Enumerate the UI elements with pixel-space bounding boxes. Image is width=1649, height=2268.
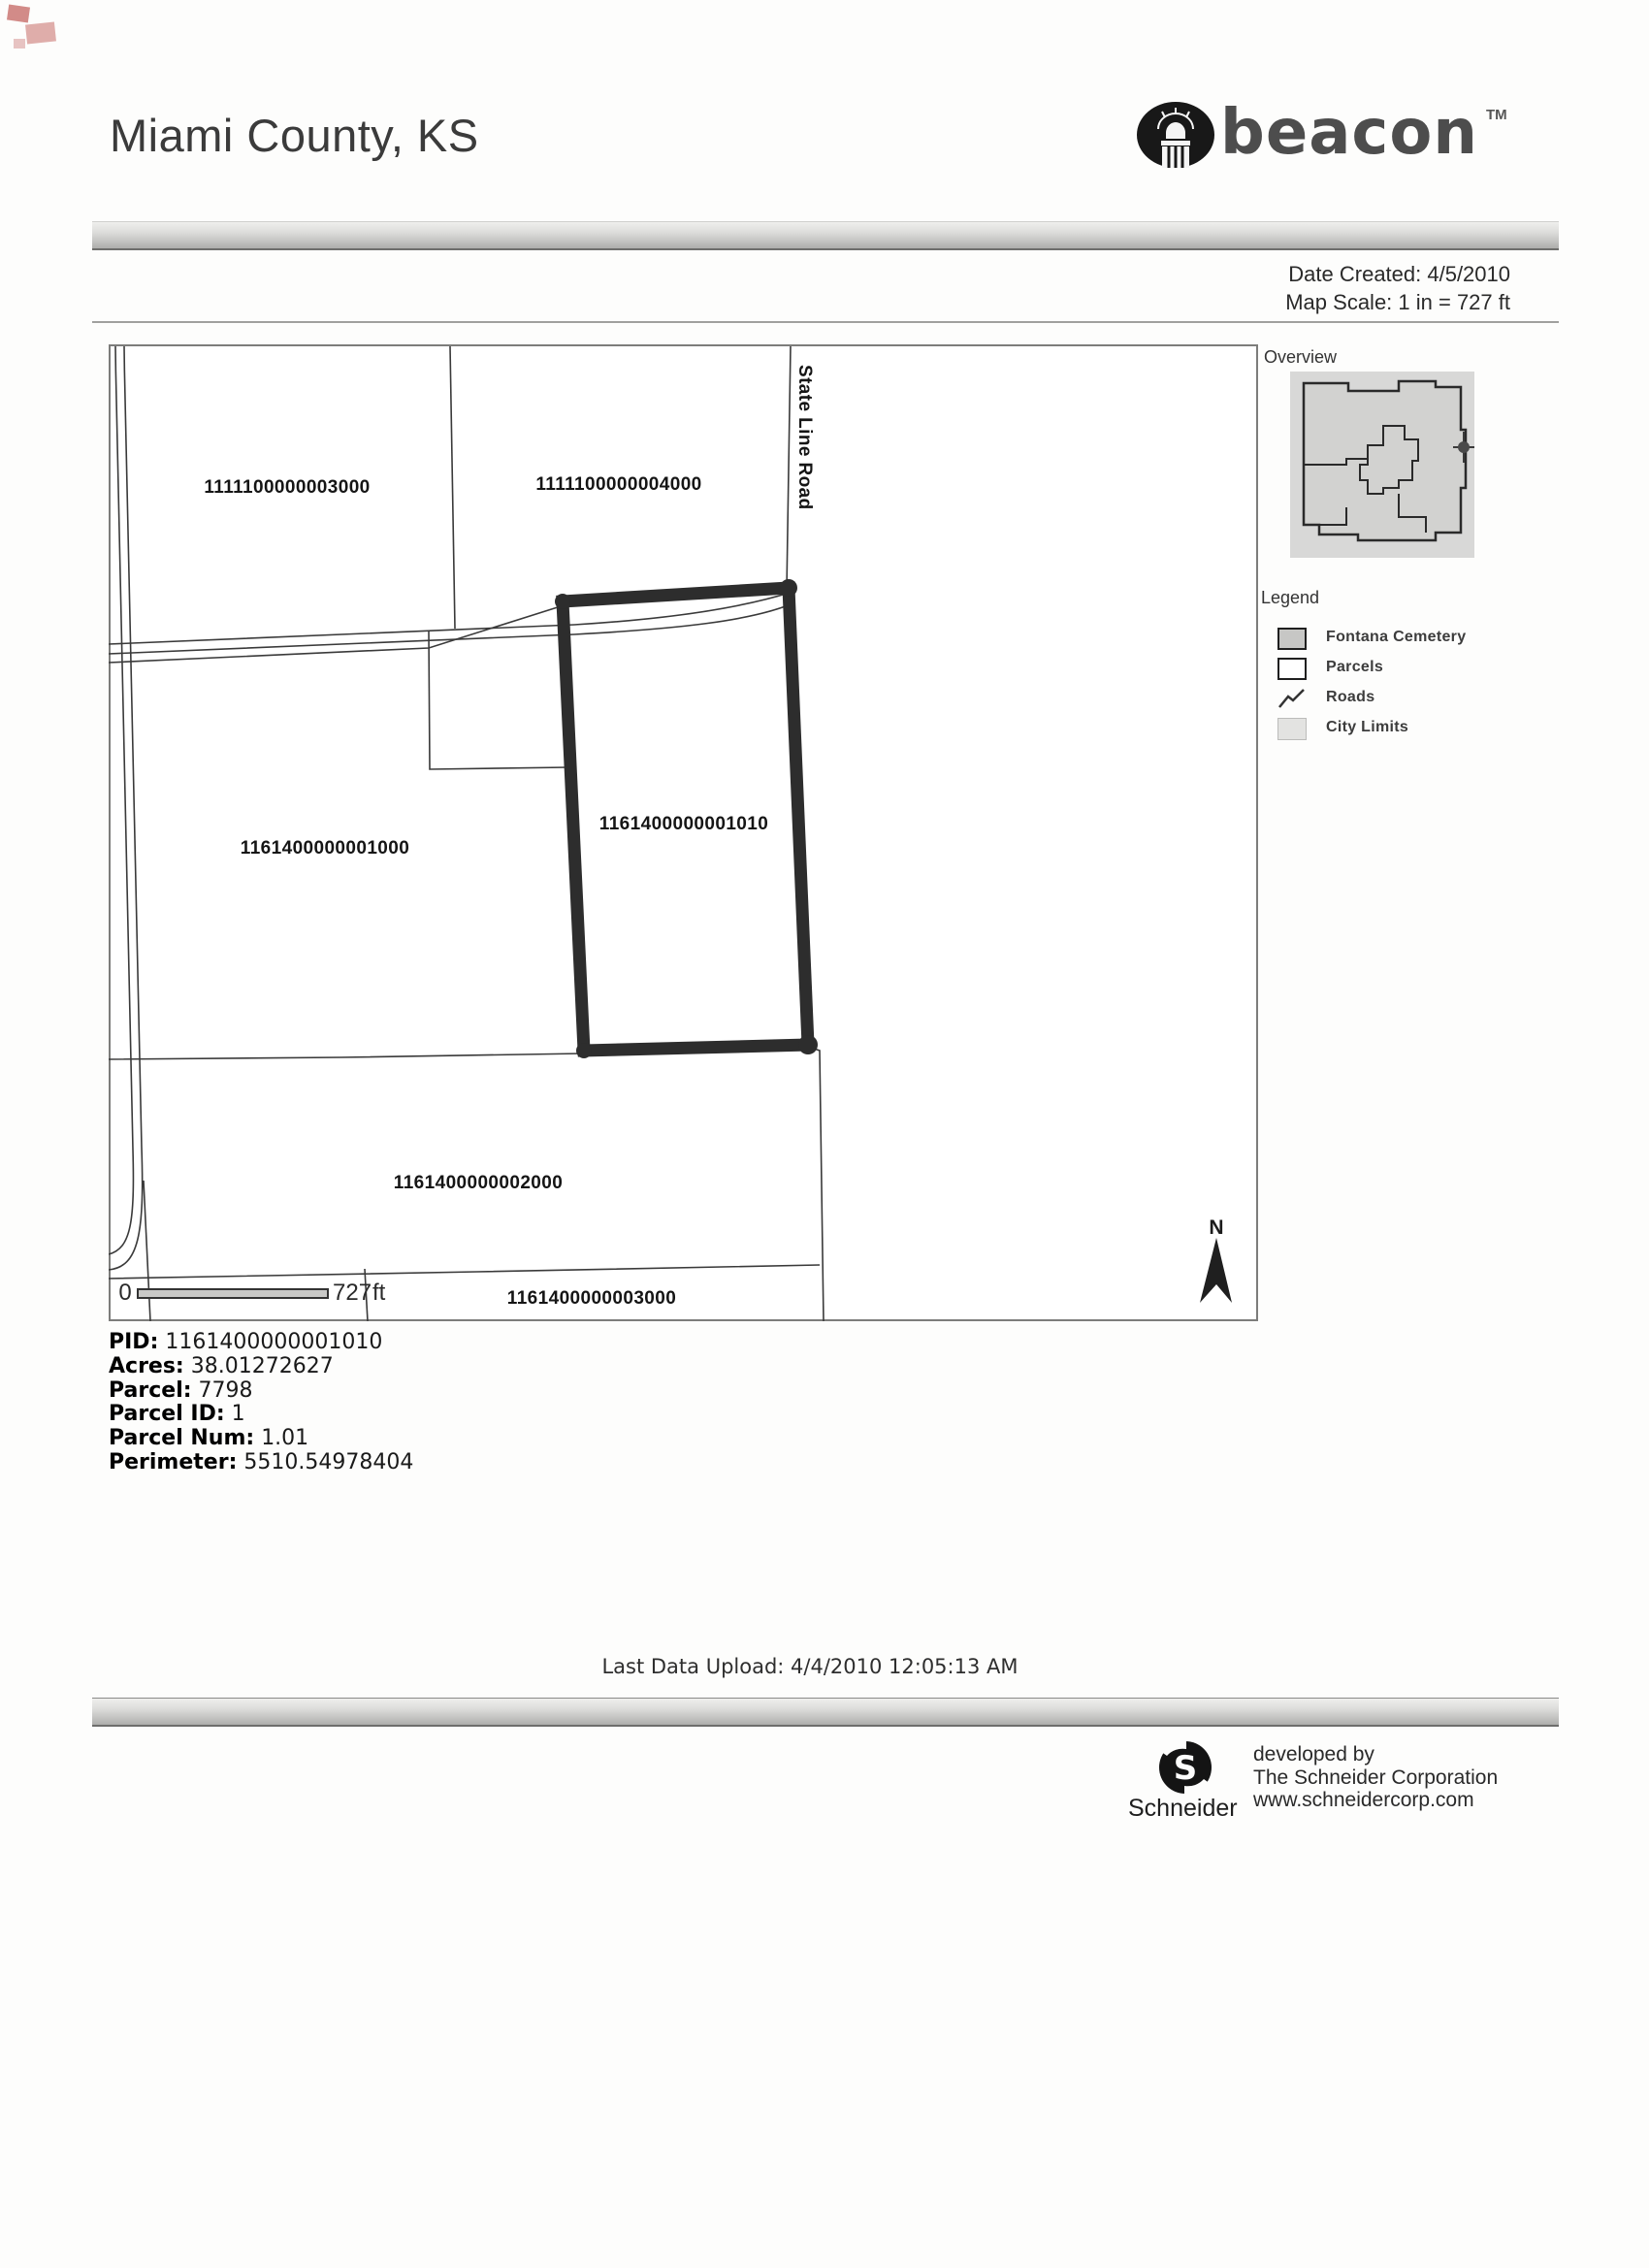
beacon-logo: beacon TM bbox=[1135, 97, 1542, 175]
info-row-parcel-num: Parcel Num: 1.01 bbox=[109, 1427, 413, 1451]
scale-bar-unit: ft bbox=[372, 1280, 386, 1306]
legend-item-fontana-cemetery: Fontana Cemetery bbox=[1276, 626, 1528, 656]
legend-title: Legend bbox=[1261, 588, 1319, 608]
city-limits-swatch-icon bbox=[1277, 718, 1307, 740]
legend-item-city-limits: City Limits bbox=[1276, 716, 1528, 746]
hairline-rule bbox=[92, 321, 1559, 323]
svg-text:N: N bbox=[1209, 1216, 1223, 1239]
county-outline bbox=[1304, 381, 1466, 540]
developer-name-line: The Schneider Corporation bbox=[1253, 1766, 1498, 1790]
capitol-dome-icon bbox=[1135, 100, 1216, 175]
date-created: Date Created: 4/5/2010 bbox=[1067, 260, 1510, 288]
legend: Fontana Cemetery Parcels Roads City Limi… bbox=[1276, 626, 1528, 746]
beacon-wordmark: beacon bbox=[1220, 97, 1478, 169]
overview-minimap bbox=[1290, 372, 1474, 558]
printed-map-page: Miami County, KS bbox=[0, 0, 1649, 2268]
info-row-acres: Acres: 38.01272627 bbox=[109, 1355, 413, 1379]
svg-text:S: S bbox=[1174, 1749, 1198, 1788]
scan-artifact bbox=[7, 5, 30, 23]
parcel-label-1111100000004000: 1111100000004000 bbox=[535, 474, 701, 495]
parcel-label-1111100000003000: 1111100000003000 bbox=[204, 477, 370, 498]
divider-bar-top bbox=[92, 221, 1559, 250]
info-row-parcel: Parcel: 7798 bbox=[109, 1379, 413, 1404]
page-title: Miami County, KS bbox=[110, 109, 479, 162]
parcel-map: 1111100000003000 1111100000004000 116140… bbox=[109, 344, 1258, 1321]
scale-bar-zero: 0 bbox=[118, 1280, 131, 1306]
overview-title: Overview bbox=[1264, 347, 1337, 368]
parcel-label-1161400000001000: 1161400000001000 bbox=[241, 838, 409, 859]
legend-item-parcels: Parcels bbox=[1276, 656, 1528, 686]
parcel-label-1161400000002000: 1161400000002000 bbox=[394, 1173, 563, 1193]
developer-credits: developed by The Schneider Corporation w… bbox=[1253, 1743, 1498, 1812]
schneider-logo-icon: S bbox=[1141, 1739, 1230, 1800]
scan-artifact bbox=[25, 21, 56, 44]
last-data-upload: Last Data Upload: 4/4/2010 12:05:13 AM bbox=[0, 1655, 1620, 1678]
parcels-swatch-icon bbox=[1277, 658, 1307, 680]
divider-bar-bottom bbox=[92, 1698, 1559, 1727]
map-scale: Map Scale: 1 in = 727 ft bbox=[1067, 288, 1510, 316]
scale-bar-distance: 727 bbox=[333, 1280, 372, 1306]
state-line-road-label: State Line Road bbox=[794, 365, 815, 510]
parcel-info: PID: 1161400000001010 Acres: 38.01272627… bbox=[109, 1331, 413, 1475]
parcel-label-1161400000001010: 1161400000001010 bbox=[599, 814, 768, 834]
roads-zigzag-icon bbox=[1277, 688, 1307, 710]
info-row-pid: PID: 1161400000001010 bbox=[109, 1331, 413, 1355]
map-meta: Date Created: 4/5/2010 Map Scale: 1 in =… bbox=[1067, 260, 1510, 316]
info-row-parcel-id: Parcel ID: 1 bbox=[109, 1403, 413, 1427]
info-row-perimeter: Perimeter: 5510.54978404 bbox=[109, 1451, 413, 1475]
cemetery-swatch-icon bbox=[1277, 628, 1307, 650]
trademark-symbol: TM bbox=[1486, 107, 1507, 123]
developer-url: www.schneidercorp.com bbox=[1253, 1789, 1498, 1812]
schneider-wordmark: Schneider bbox=[1128, 1795, 1238, 1823]
parcel-label-1161400000003000: 1161400000003000 bbox=[507, 1288, 676, 1309]
legend-item-roads: Roads bbox=[1276, 686, 1528, 716]
scan-artifact bbox=[14, 39, 25, 49]
developed-by-line: developed by bbox=[1253, 1743, 1498, 1766]
